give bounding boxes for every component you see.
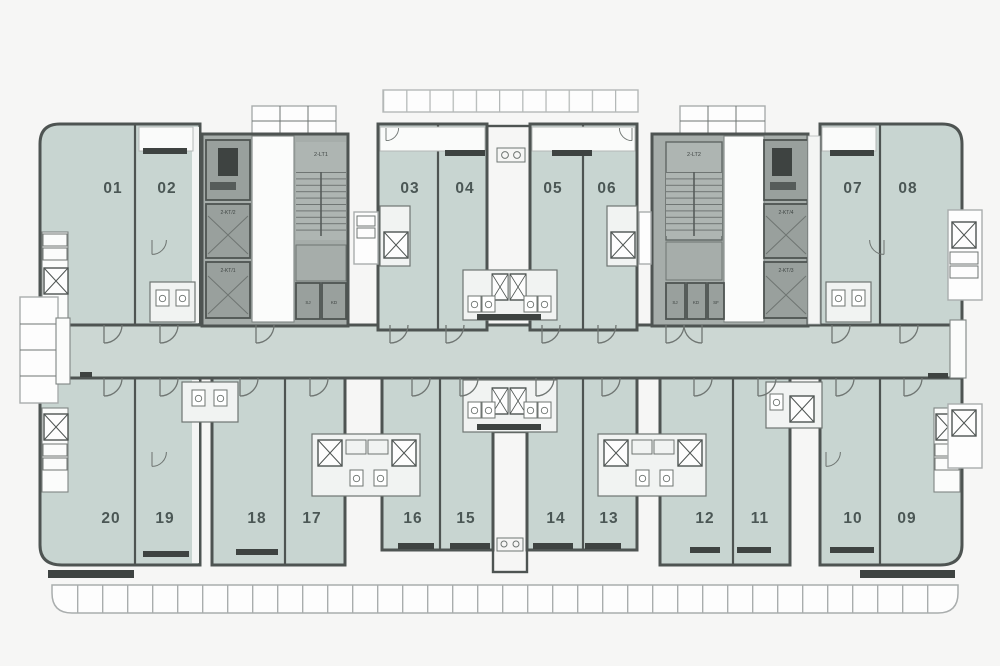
room-label-left-2: KD (331, 300, 338, 305)
bottom-balcony (52, 585, 958, 613)
unit-label-08: 08 (898, 180, 917, 197)
core-left (202, 134, 348, 326)
unit-label-14: 14 (546, 510, 565, 527)
unit-label-09: 09 (897, 510, 916, 527)
room-label-left-1: SJ (305, 300, 310, 305)
elevator-label-left-1: 2-KT/2 (220, 210, 235, 216)
core-left-lobby (252, 136, 294, 322)
unit-label-16: 16 (403, 510, 422, 527)
unit-label-06: 06 (597, 180, 616, 197)
corridor-end-right (950, 320, 966, 378)
unit-label-01: 01 (103, 180, 122, 197)
unit-label-15: 15 (456, 510, 475, 527)
central-corridor (68, 325, 957, 378)
unit-label-20: 20 (101, 510, 120, 527)
unit-label-12: 12 (695, 510, 714, 527)
unit-label-02: 02 (157, 180, 176, 197)
floor-plan: 01 02 03 04 05 06 07 08 20 19 18 17 16 1… (0, 0, 1000, 666)
room-label-right-2: KD (693, 300, 700, 305)
unit-label-18: 18 (247, 510, 266, 527)
unit-label-10: 10 (843, 510, 862, 527)
unit-label-07: 07 (843, 180, 862, 197)
core-right (652, 134, 820, 326)
stair-label-left: 2-LT1 (314, 152, 328, 158)
unit-label-05: 05 (543, 180, 562, 197)
stair-label-right: 2-LT2 (687, 152, 701, 158)
unit-label-11: 11 (751, 510, 769, 527)
elevator-label-right-1: 2-KT/4 (778, 210, 793, 216)
elevator-label-right-2: 2-KT/3 (778, 268, 793, 274)
unit-label-04: 04 (455, 180, 474, 197)
unit-label-13: 13 (599, 510, 618, 527)
elevator-label-left-2: 2-KT/1 (220, 268, 235, 274)
floor-plan-canvas: 01 02 03 04 05 06 07 08 20 19 18 17 16 1… (0, 0, 1000, 666)
unit-label-17: 17 (302, 510, 321, 527)
core-right-lobby (724, 136, 764, 322)
unit-label-03: 03 (400, 180, 419, 197)
unit-label-19: 19 (155, 510, 174, 527)
room-label-right-3: SF (713, 300, 719, 305)
corridor-end-left (56, 318, 70, 384)
room-label-right-1: SJ (672, 300, 677, 305)
